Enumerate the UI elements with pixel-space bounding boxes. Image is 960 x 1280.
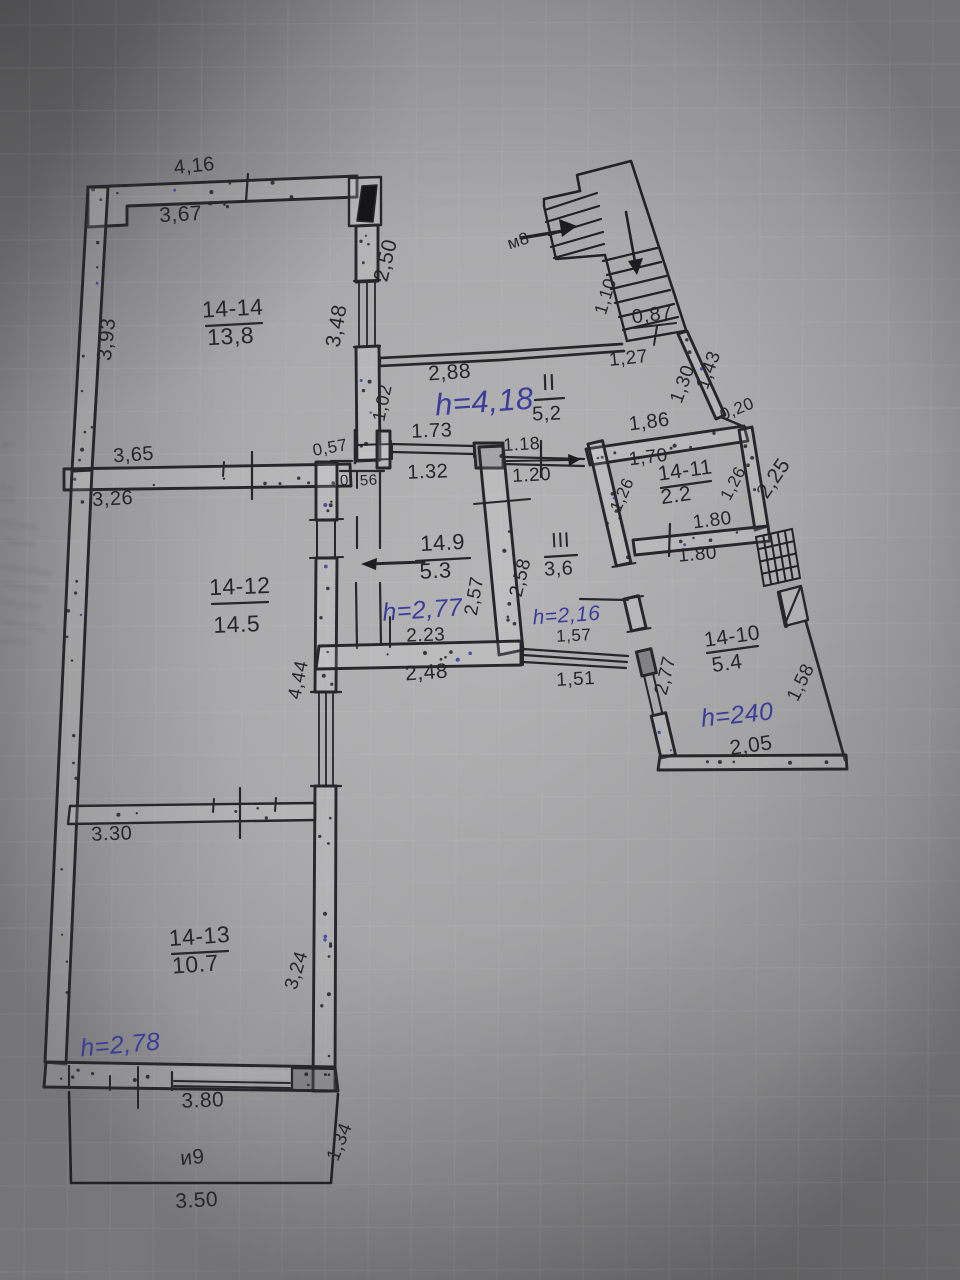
svg-text:1,57: 1,57 bbox=[556, 625, 592, 646]
svg-text:2,88: 2,88 bbox=[427, 360, 471, 386]
svg-text:1.73: 1.73 bbox=[411, 419, 453, 442]
svg-text:3.80: 3.80 bbox=[181, 1088, 225, 1112]
svg-text:h=2,77: h=2,77 bbox=[381, 593, 464, 627]
svg-text:14.9: 14.9 bbox=[420, 529, 466, 556]
svg-text:1.32: 1.32 bbox=[407, 460, 449, 483]
svg-text:3.50: 3.50 bbox=[175, 1188, 219, 1213]
svg-text:1,51: 1,51 bbox=[556, 668, 596, 691]
svg-text:h=4,18: h=4,18 bbox=[434, 381, 535, 423]
svg-text:14-12: 14-12 bbox=[209, 572, 271, 600]
svg-text:h=2,16: h=2,16 bbox=[532, 602, 601, 630]
svg-text:14.5: 14.5 bbox=[213, 610, 261, 638]
svg-text:14-14: 14-14 bbox=[201, 293, 264, 322]
svg-text:2.23: 2.23 bbox=[406, 624, 446, 646]
svg-text:III: III bbox=[551, 529, 571, 553]
svg-text:4,16: 4,16 bbox=[173, 153, 216, 179]
svg-text:5.4: 5.4 bbox=[710, 650, 744, 677]
svg-text:2.2: 2.2 bbox=[659, 482, 693, 509]
svg-text:10.7: 10.7 bbox=[171, 949, 219, 978]
svg-text:1,27: 1,27 bbox=[608, 346, 649, 371]
svg-text:3,65: 3,65 bbox=[112, 443, 154, 468]
svg-text:и9: и9 bbox=[179, 1145, 205, 1170]
svg-text:56: 56 bbox=[359, 472, 378, 490]
svg-text:5.3: 5.3 bbox=[419, 557, 452, 584]
svg-text:II: II bbox=[541, 369, 556, 395]
svg-text:2,48: 2,48 bbox=[404, 660, 448, 686]
svg-text:0.: 0. bbox=[340, 472, 354, 490]
svg-text:3,6: 3,6 bbox=[543, 557, 573, 581]
svg-text:3,26: 3,26 bbox=[92, 487, 134, 511]
svg-text:1.80: 1.80 bbox=[677, 542, 718, 566]
svg-text:3,67: 3,67 bbox=[159, 202, 203, 227]
svg-text:1.18: 1.18 bbox=[503, 433, 541, 455]
svg-text:1.20: 1.20 bbox=[512, 464, 552, 487]
svg-text:14-13: 14-13 bbox=[168, 921, 231, 951]
svg-text:3,93: 3,93 bbox=[93, 317, 120, 362]
svg-text:13,8: 13,8 bbox=[207, 322, 255, 350]
svg-text:5,2: 5,2 bbox=[532, 402, 562, 425]
svg-text:3.30: 3.30 bbox=[91, 822, 133, 845]
